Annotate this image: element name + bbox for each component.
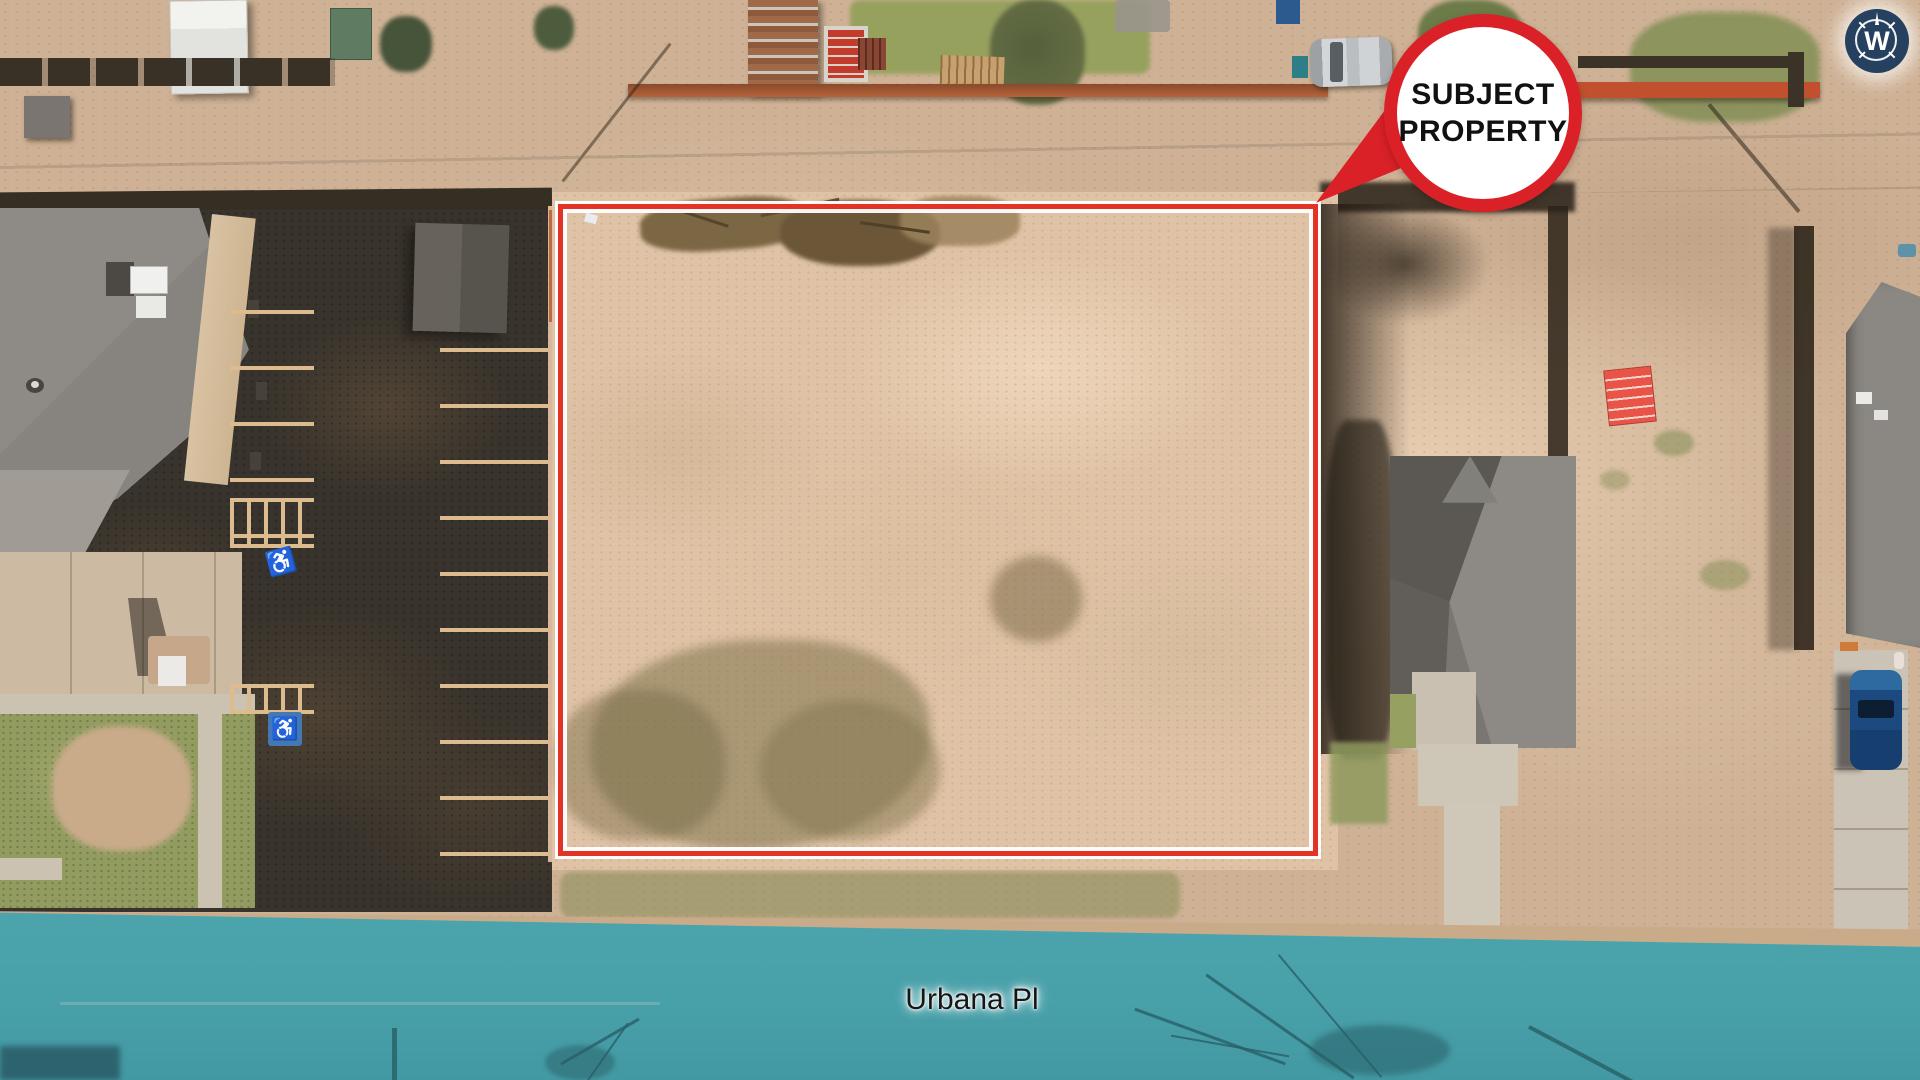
parking-stripes (440, 296, 554, 862)
hatched-no-park-zone (230, 498, 314, 548)
yard-clutter (1115, 0, 1170, 32)
parked-silver-car (1309, 37, 1393, 88)
orange-fence (1575, 82, 1820, 98)
parked-blue-car (1850, 670, 1902, 770)
orange-curb-object (1840, 642, 1858, 651)
tree-canopy (380, 16, 432, 72)
orange-fence (628, 84, 1328, 97)
roadside-scrub-band (560, 872, 1180, 918)
street-tree-shadow (1130, 995, 1460, 1080)
callout-text-line1: SUBJECT (1411, 76, 1555, 113)
satellite-dish-face (31, 381, 39, 388)
green-trailer (330, 8, 372, 60)
handicap-glyph: ♿ (271, 718, 298, 740)
pole-shadow-on-street (392, 1028, 397, 1080)
grill-top (158, 656, 186, 686)
grass-tuft (1654, 430, 1694, 456)
canopy-shadow (1310, 1025, 1450, 1075)
compass-icon: W (1845, 9, 1909, 73)
grass-tuft (1700, 560, 1750, 590)
side-fence (1548, 206, 1568, 468)
corner-shadow (0, 1046, 120, 1080)
front-walkway (1444, 804, 1500, 939)
gray-shed (24, 96, 70, 138)
sidewalk (0, 858, 62, 880)
callout-text-line2: PROPERTY (1398, 113, 1567, 150)
rooftop-ac-unit (1856, 392, 1872, 404)
ac-unit (136, 296, 166, 318)
canopy-shadow (545, 1045, 615, 1080)
side-yard-grass (1330, 742, 1388, 824)
aerial-photo-canvas: ♿ ♿ (0, 0, 1920, 1080)
dark-fence (1578, 56, 1803, 68)
ac-unit (130, 266, 168, 294)
branch-shadow (1171, 1035, 1290, 1058)
patio-concrete (1412, 672, 1476, 750)
teal-yard-object (1898, 244, 1916, 257)
tree-shadow-blob (1320, 204, 1490, 324)
blue-canopy (1276, 0, 1300, 24)
patio-grass (1390, 694, 1416, 748)
rusty-roof-building (748, 0, 818, 94)
grass-tuft (1600, 470, 1630, 490)
red-yard-object (1603, 366, 1657, 427)
hatched-no-park-zone (230, 684, 314, 714)
sidewalk (198, 694, 222, 908)
fence-shadow (1768, 228, 1796, 650)
crate-stack (858, 38, 886, 70)
subject-property-callout: SUBJECT PROPERTY (1384, 14, 1582, 212)
handicap-sign-blue-icon: ♿ (268, 712, 302, 746)
subject-property-boundary (558, 204, 1318, 856)
street-centerline-faint (60, 1002, 660, 1005)
dirt-patch-in-lawn (52, 726, 192, 851)
car-windshield (1330, 42, 1343, 82)
patio-pad (1418, 744, 1518, 806)
backyard-shadow (1326, 420, 1396, 760)
street-tree-shadow (545, 1020, 665, 1080)
property-line-fence (1794, 226, 1814, 650)
teal-bin (1292, 56, 1308, 78)
pedestrian-figure (1894, 652, 1904, 669)
dark-fence (1788, 52, 1804, 107)
handicap-glyph: ♿ (263, 546, 299, 580)
fence-row (0, 58, 335, 86)
street-name-label: Urbana Pl (862, 982, 1082, 1018)
far-right-house-roof (1846, 282, 1920, 648)
rooftop-ac-unit (1874, 410, 1888, 420)
tree-canopy (534, 6, 574, 50)
compass-letter: W (1845, 26, 1909, 56)
car-windshield (1858, 700, 1894, 718)
